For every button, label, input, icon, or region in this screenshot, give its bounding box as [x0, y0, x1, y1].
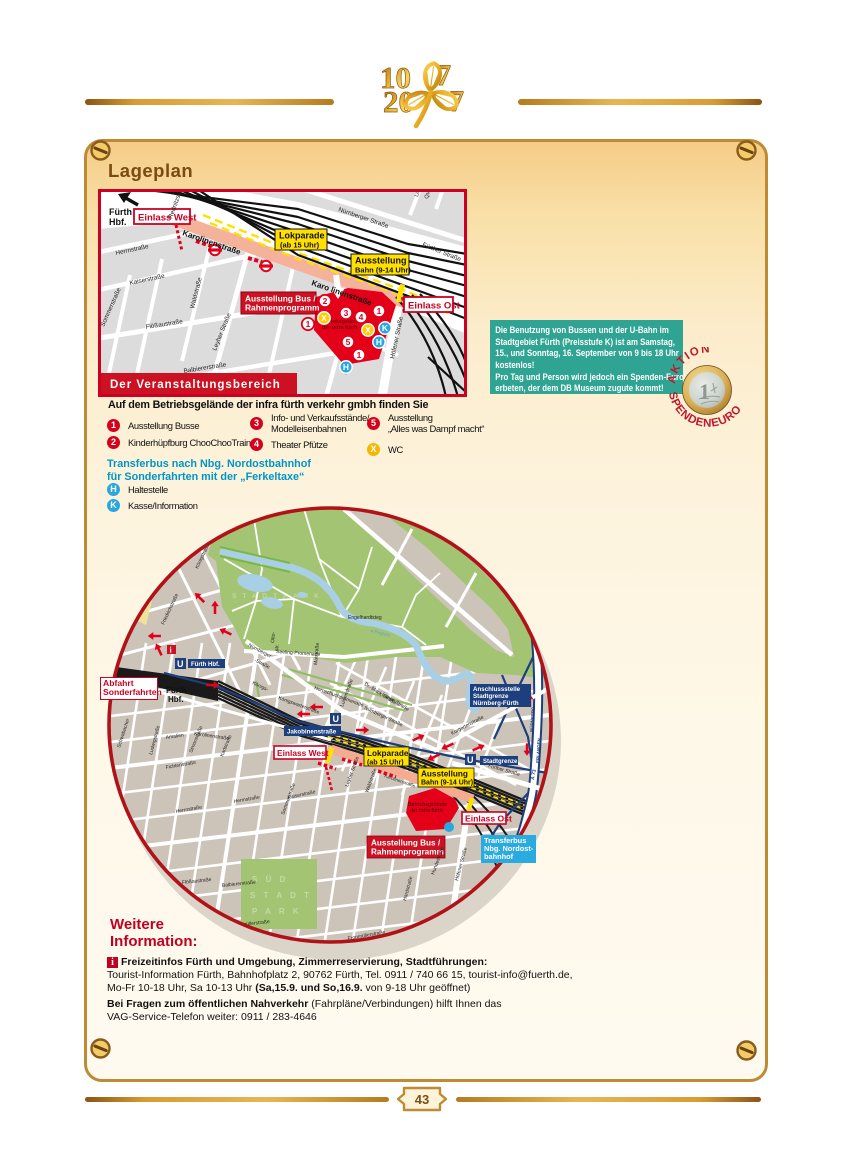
svg-text:der infra fürth: der infra fürth: [410, 808, 443, 814]
svg-text:5: 5: [346, 337, 351, 347]
svg-text:Anschlussstelle: Anschlussstelle: [473, 686, 521, 693]
svg-text:Einlass Ost: Einlass Ost: [408, 301, 461, 312]
svg-text:U: U: [467, 755, 474, 765]
svg-text:Bahn (9-14 Uhr): Bahn (9-14 Uhr): [355, 266, 411, 275]
svg-text:Lokparade: Lokparade: [367, 749, 409, 758]
svg-text:1: 1: [357, 350, 362, 360]
svg-text:Ausstellung: Ausstellung: [355, 256, 407, 266]
svg-text:str.: str.: [274, 644, 281, 651]
svg-text:S Ü D: S Ü D: [252, 875, 288, 884]
svg-text:Ausstellung: Ausstellung: [421, 770, 468, 779]
svg-text:S T A D T: S T A D T: [250, 891, 312, 900]
svg-text:H: H: [376, 337, 382, 347]
svg-text:3: 3: [344, 308, 349, 318]
svg-text:Fürth Hbf.: Fürth Hbf.: [191, 662, 220, 668]
svg-text:(ab 15 Uhr): (ab 15 Uhr): [280, 241, 320, 250]
svg-text:H: H: [343, 362, 349, 372]
svg-text:Stadtgrenze: Stadtgrenze: [473, 693, 509, 700]
svg-text:Hbf.: Hbf.: [109, 217, 127, 227]
svg-text:P A R K: P A R K: [252, 907, 302, 916]
svg-text:Engelhardtsteg: Engelhardtsteg: [348, 615, 382, 621]
svg-text:(ab 15 Uhr): (ab 15 Uhr): [367, 760, 404, 767]
svg-text:Ausstellung Bus /: Ausstellung Bus /: [371, 839, 441, 848]
svg-text:X: X: [365, 325, 371, 335]
svg-text:1: 1: [306, 319, 311, 329]
svg-text:Rahmenprogramm: Rahmenprogramm: [371, 848, 444, 857]
svg-text:U: U: [177, 659, 184, 669]
svg-text:Hbf.: Hbf.: [168, 695, 184, 704]
svg-text:Rahmenprogramm: Rahmenprogramm: [245, 303, 319, 313]
svg-text:Otto-: Otto-: [270, 631, 277, 643]
svg-text:Jakobinenstraße: Jakobinenstraße: [287, 729, 337, 736]
svg-text:Bahn (9-14 Uhr): Bahn (9-14 Uhr): [421, 780, 473, 787]
svg-text:bahnhof: bahnhof: [484, 852, 514, 861]
svg-text:der infra fürth: der infra fürth: [322, 325, 357, 331]
svg-text:1: 1: [699, 379, 710, 404]
svg-text:4: 4: [359, 312, 364, 322]
svg-text:Einlass West: Einlass West: [277, 748, 329, 758]
svg-text:Einlass Ost: Einlass Ost: [465, 814, 512, 824]
svg-text:K: K: [382, 323, 389, 333]
svg-text:X: X: [321, 313, 327, 323]
svg-text:2: 2: [323, 296, 328, 306]
svg-text:Nürnberg-Fürth: Nürnberg-Fürth: [473, 700, 519, 707]
svg-text:Lokparade: Lokparade: [279, 231, 325, 241]
svg-text:Fürth: Fürth: [166, 686, 187, 695]
svg-text:U: U: [333, 714, 340, 724]
svg-text:Fürth: Fürth: [109, 207, 132, 217]
svg-text:Der Veranstaltungsbereich: Der Veranstaltungsbereich: [110, 379, 281, 391]
svg-text:43: 43: [415, 1092, 429, 1107]
svg-text:1: 1: [377, 306, 382, 316]
